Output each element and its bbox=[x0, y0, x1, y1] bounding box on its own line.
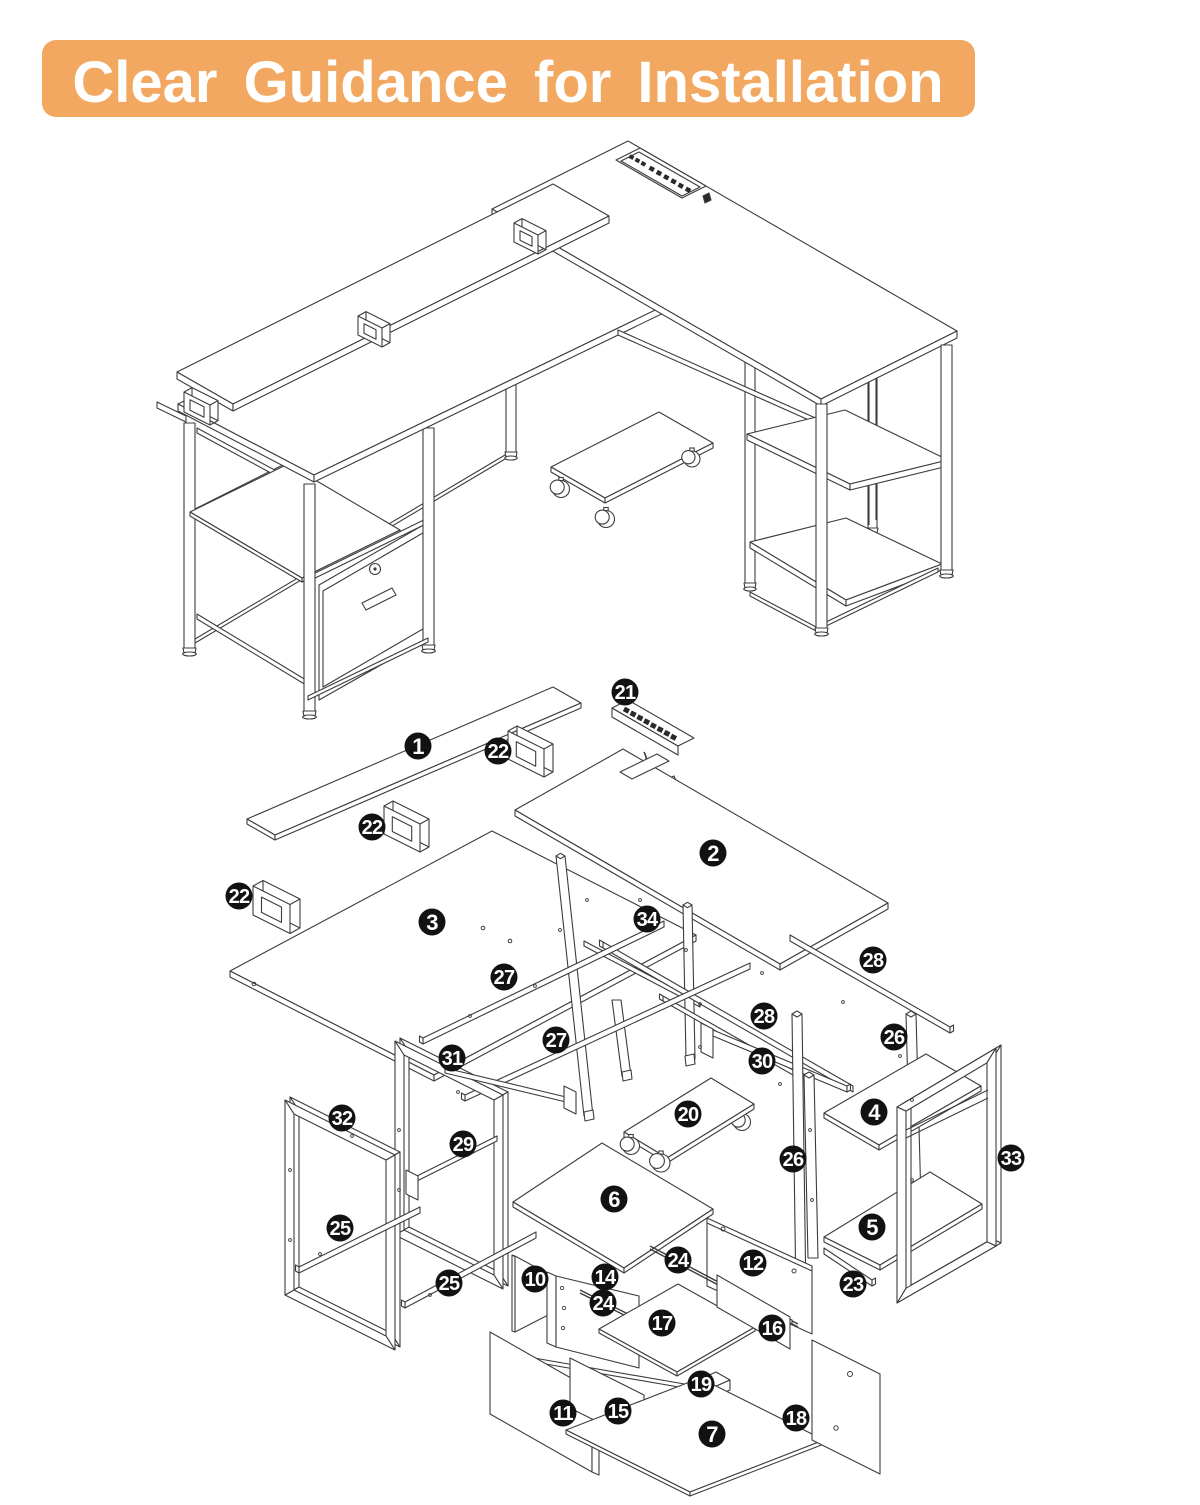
svg-text:6: 6 bbox=[608, 1187, 620, 1212]
svg-text:30: 30 bbox=[752, 1051, 773, 1073]
svg-text:Clear Guidance for Installatio: Clear Guidance for Installation bbox=[72, 50, 943, 115]
svg-text:15: 15 bbox=[608, 1401, 629, 1423]
svg-text:21: 21 bbox=[615, 682, 636, 704]
svg-text:20: 20 bbox=[678, 1104, 699, 1126]
svg-text:22: 22 bbox=[488, 741, 509, 763]
svg-text:1: 1 bbox=[412, 734, 424, 759]
svg-text:4: 4 bbox=[868, 1100, 881, 1125]
svg-text:14: 14 bbox=[595, 1267, 617, 1289]
svg-text:29: 29 bbox=[453, 1134, 474, 1156]
svg-text:25: 25 bbox=[439, 1273, 460, 1295]
svg-text:22: 22 bbox=[229, 886, 250, 908]
svg-text:3: 3 bbox=[426, 910, 438, 935]
svg-text:27: 27 bbox=[494, 967, 515, 989]
svg-text:19: 19 bbox=[691, 1374, 712, 1396]
svg-text:33: 33 bbox=[1001, 1148, 1022, 1170]
svg-text:17: 17 bbox=[652, 1313, 673, 1335]
svg-text:12: 12 bbox=[743, 1253, 764, 1275]
svg-text:34: 34 bbox=[637, 909, 659, 931]
svg-text:5: 5 bbox=[866, 1215, 878, 1240]
svg-text:18: 18 bbox=[786, 1408, 807, 1430]
svg-text:28: 28 bbox=[863, 950, 884, 972]
svg-text:11: 11 bbox=[553, 1403, 573, 1425]
svg-text:31: 31 bbox=[442, 1048, 463, 1070]
svg-text:10: 10 bbox=[525, 1269, 546, 1291]
svg-text:22: 22 bbox=[362, 817, 383, 839]
svg-text:26: 26 bbox=[884, 1027, 905, 1049]
svg-text:16: 16 bbox=[762, 1318, 783, 1340]
svg-text:24: 24 bbox=[668, 1250, 690, 1272]
svg-text:24: 24 bbox=[593, 1293, 615, 1315]
svg-text:23: 23 bbox=[843, 1274, 864, 1296]
svg-text:32: 32 bbox=[332, 1108, 353, 1130]
svg-text:27: 27 bbox=[546, 1030, 567, 1052]
svg-text:2: 2 bbox=[707, 841, 719, 866]
svg-text:25: 25 bbox=[330, 1218, 351, 1240]
svg-text:26: 26 bbox=[783, 1149, 804, 1171]
svg-text:7: 7 bbox=[706, 1422, 718, 1447]
svg-text:28: 28 bbox=[754, 1006, 775, 1028]
